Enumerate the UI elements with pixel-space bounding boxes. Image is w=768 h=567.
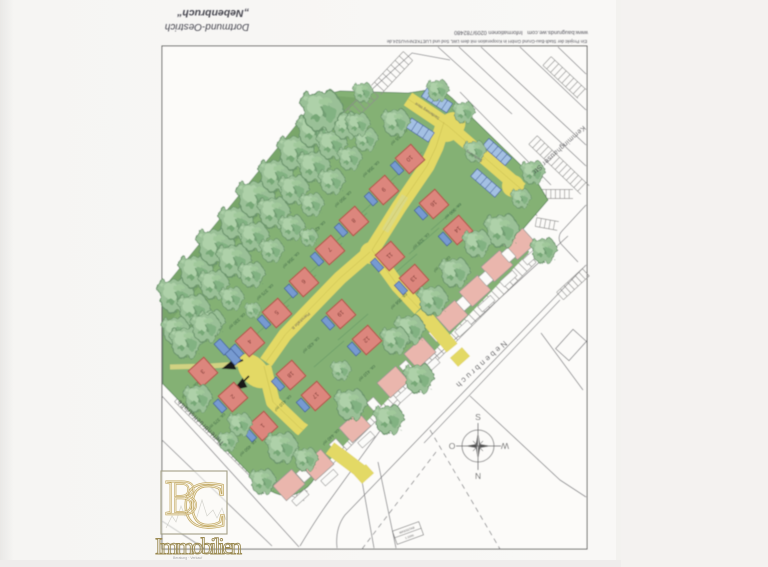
svg-text:Beratung · Verkauf: Beratung · Verkauf <box>173 556 202 560</box>
svg-text:B: B <box>165 469 198 525</box>
